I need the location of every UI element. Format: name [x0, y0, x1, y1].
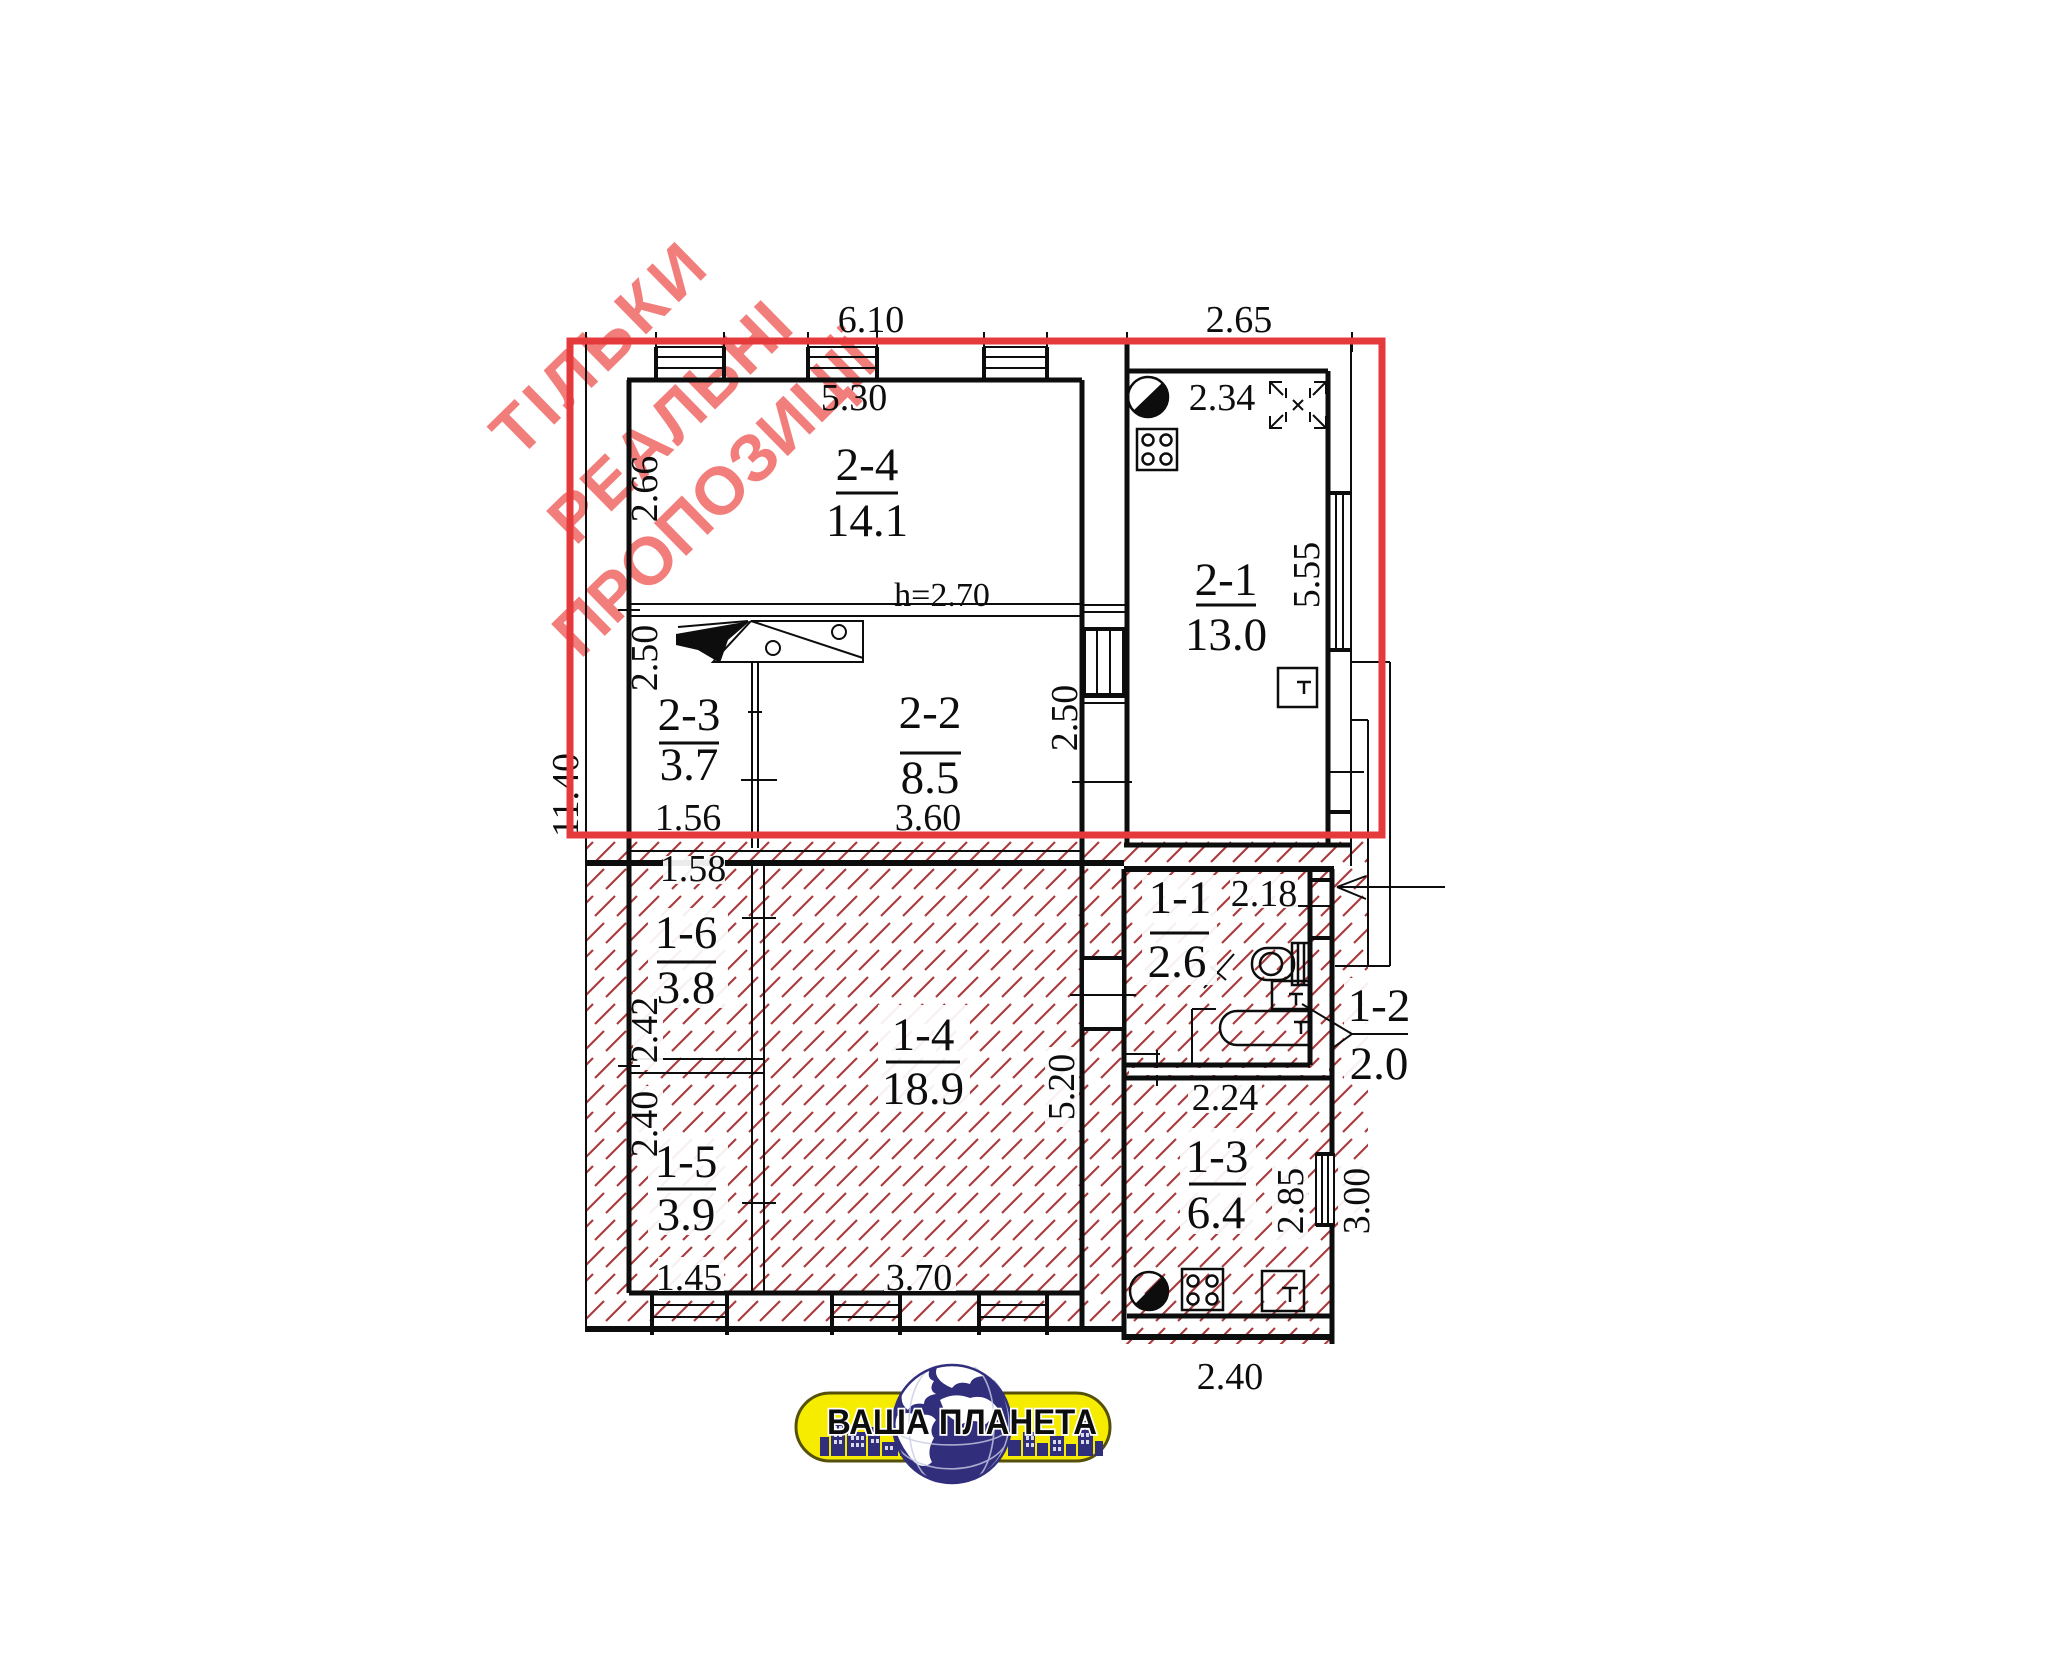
svg-text:2.6: 2.6 — [1148, 936, 1207, 988]
svg-text:2.34: 2.34 — [1189, 377, 1256, 419]
svg-text:2.40: 2.40 — [1197, 1356, 1264, 1398]
svg-text:6.10: 6.10 — [838, 299, 905, 341]
svg-text:2.18: 2.18 — [1231, 873, 1298, 915]
svg-text:ВАША ПЛАНЕТА: ВАША ПЛАНЕТА — [827, 1403, 1097, 1442]
svg-text:2-4: 2-4 — [836, 439, 899, 491]
svg-text:3.9: 3.9 — [657, 1189, 716, 1241]
svg-text:13.0: 13.0 — [1185, 609, 1267, 661]
svg-text:3.70: 3.70 — [886, 1257, 953, 1299]
svg-text:3.7: 3.7 — [660, 739, 719, 791]
svg-text:1.45: 1.45 — [656, 1257, 723, 1299]
svg-text:2.85: 2.85 — [1270, 1168, 1312, 1235]
svg-text:14.1: 14.1 — [826, 495, 908, 547]
svg-text:h=2.70: h=2.70 — [894, 577, 990, 614]
svg-text:5.30: 5.30 — [821, 377, 888, 419]
svg-text:11.40: 11.40 — [545, 753, 587, 837]
svg-text:2.50: 2.50 — [1044, 685, 1086, 752]
svg-text:1-1: 1-1 — [1149, 872, 1212, 924]
svg-text:1-2: 1-2 — [1348, 980, 1411, 1032]
svg-text:2.42: 2.42 — [624, 997, 666, 1064]
svg-text:3.00: 3.00 — [1336, 1168, 1378, 1235]
svg-text:2.65: 2.65 — [1206, 299, 1273, 341]
svg-text:1.58: 1.58 — [660, 848, 727, 890]
svg-text:2.0: 2.0 — [1350, 1038, 1409, 1090]
svg-text:2-3: 2-3 — [658, 689, 721, 741]
svg-text:2.66: 2.66 — [624, 456, 666, 523]
svg-text:1-3: 1-3 — [1186, 1131, 1249, 1183]
svg-text:2.24: 2.24 — [1192, 1077, 1259, 1119]
svg-text:18.9: 18.9 — [882, 1063, 964, 1115]
svg-text:6.4: 6.4 — [1187, 1187, 1246, 1239]
svg-text:1-6: 1-6 — [655, 907, 718, 959]
svg-text:2-1: 2-1 — [1195, 554, 1258, 606]
svg-text:1-4: 1-4 — [892, 1009, 955, 1061]
svg-text:5.55: 5.55 — [1286, 542, 1328, 609]
svg-text:1-5: 1-5 — [655, 1136, 718, 1188]
svg-text:5.20: 5.20 — [1041, 1054, 1083, 1121]
svg-text:2-2: 2-2 — [899, 687, 962, 739]
svg-text:2.50: 2.50 — [624, 625, 666, 692]
